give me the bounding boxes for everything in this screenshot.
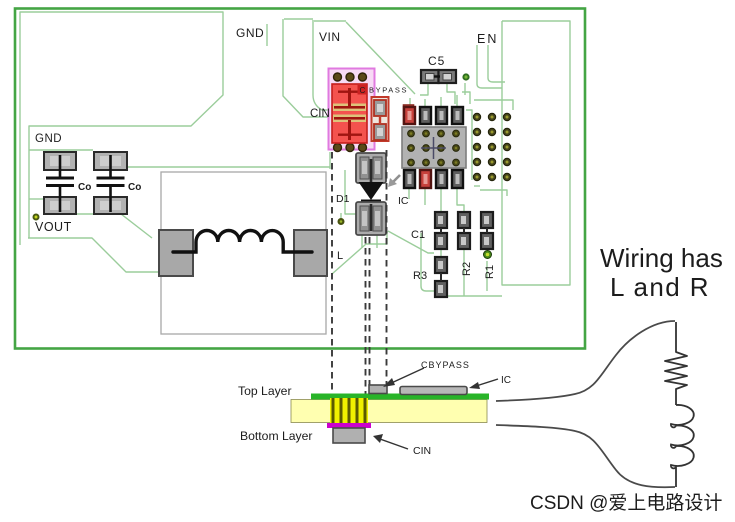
svg-text:R3: R3 (413, 270, 427, 282)
svg-text:Co: Co (128, 182, 141, 193)
svg-text:C: C (360, 86, 366, 95)
svg-text:Co: Co (78, 182, 91, 193)
svg-text:IC: IC (501, 375, 511, 386)
svg-text:CSDN @爱上电路设计: CSDN @爱上电路设计 (530, 492, 722, 514)
svg-text:BYPASS: BYPASS (369, 86, 408, 95)
svg-text:R2: R2 (461, 262, 473, 276)
svg-text:EN: EN (477, 32, 498, 46)
svg-text:R1: R1 (484, 265, 496, 279)
svg-text:CBYPASS: CBYPASS (421, 360, 470, 370)
svg-text:GND: GND (35, 133, 62, 145)
svg-text:C5: C5 (428, 54, 445, 68)
svg-text:VIN: VIN (319, 30, 341, 44)
svg-text:L: L (337, 250, 343, 262)
svg-text:Wiring has: Wiring has (600, 243, 723, 273)
svg-text:CIN: CIN (310, 108, 330, 120)
svg-text:D1: D1 (336, 193, 350, 205)
svg-text:C1: C1 (411, 229, 425, 241)
svg-text:Top Layer: Top Layer (238, 384, 292, 398)
svg-text:GND: GND (236, 26, 264, 40)
svg-text:L and R: L and R (610, 272, 710, 302)
svg-text:Bottom Layer: Bottom Layer (240, 429, 312, 443)
svg-text:CIN: CIN (413, 445, 431, 457)
svg-text:VOUT: VOUT (35, 220, 72, 234)
svg-text:IC: IC (398, 195, 409, 207)
